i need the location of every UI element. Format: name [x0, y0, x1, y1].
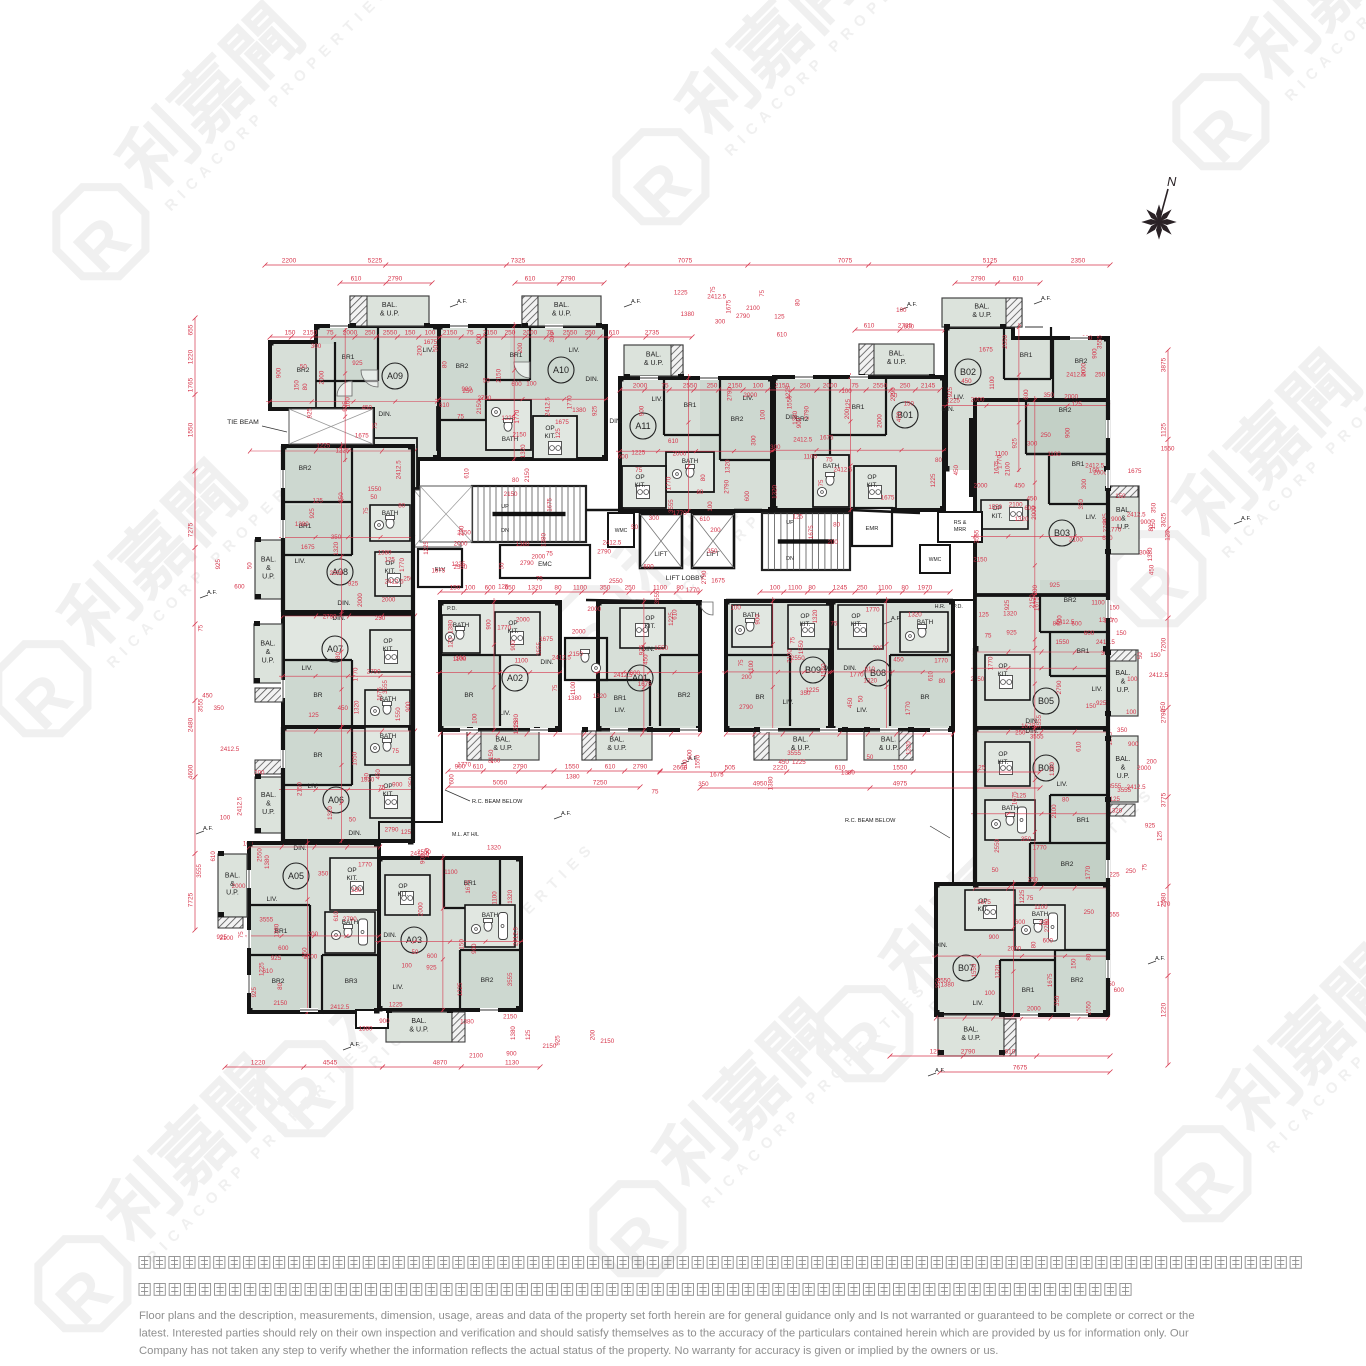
svg-text:1100: 1100: [878, 585, 892, 592]
svg-text:450: 450: [362, 405, 373, 412]
svg-text:A.F.: A.F.: [457, 299, 467, 305]
svg-text:125: 125: [978, 611, 989, 618]
svg-text:1220: 1220: [1161, 1002, 1168, 1017]
svg-text:DIN.: DIN.: [383, 932, 396, 939]
svg-text:100: 100: [1127, 676, 1138, 683]
svg-text:BR: BR: [755, 694, 764, 701]
svg-text:U.P.: U.P.: [1117, 687, 1130, 694]
svg-text:2790: 2790: [727, 387, 734, 401]
svg-text:250: 250: [1126, 868, 1137, 875]
svg-text:&: &: [1121, 765, 1126, 772]
svg-text:4870: 4870: [433, 1060, 448, 1067]
svg-text:1675: 1675: [555, 419, 569, 426]
svg-text:1675: 1675: [355, 433, 369, 440]
svg-text:& U.P.: & U.P.: [887, 359, 906, 366]
svg-text:600: 600: [643, 563, 654, 570]
svg-text:2412.5: 2412.5: [545, 397, 552, 416]
svg-text:3555: 3555: [196, 863, 203, 877]
svg-text:3555: 3555: [787, 750, 801, 757]
svg-text:OP: OP: [998, 751, 1007, 758]
svg-text:75: 75: [851, 383, 859, 390]
svg-text:2790: 2790: [739, 704, 753, 711]
svg-text:DN: DN: [501, 528, 509, 534]
svg-text:3875: 3875: [1161, 357, 1168, 372]
svg-text:50: 50: [499, 562, 506, 569]
svg-text:2550: 2550: [454, 564, 468, 571]
svg-text:1770: 1770: [934, 658, 948, 665]
svg-text:LIV.: LIV.: [1056, 781, 1067, 788]
svg-text:A.F.: A.F.: [935, 1068, 945, 1074]
svg-text:KIT.: KIT.: [997, 671, 1008, 678]
svg-text:75: 75: [831, 620, 838, 627]
svg-text:450: 450: [961, 378, 972, 385]
svg-text:250: 250: [800, 383, 811, 390]
svg-text:KIT.: KIT.: [991, 513, 1002, 520]
svg-text:1675: 1675: [539, 636, 553, 643]
svg-text:OP: OP: [800, 613, 809, 620]
svg-text:A.F.: A.F.: [891, 616, 901, 622]
svg-text:1245: 1245: [833, 585, 848, 592]
svg-text:900: 900: [506, 1051, 517, 1058]
svg-text:BR2: BR2: [731, 416, 744, 423]
svg-text:1100: 1100: [491, 891, 498, 905]
svg-text:2000: 2000: [587, 606, 601, 613]
svg-text:925: 925: [307, 407, 314, 418]
svg-text:DIN.: DIN.: [609, 418, 622, 425]
svg-text:1380: 1380: [1049, 762, 1056, 776]
svg-text:200: 200: [827, 539, 838, 546]
svg-text:2000: 2000: [523, 330, 538, 337]
svg-text:U.P.: U.P.: [226, 890, 239, 897]
svg-text:75: 75: [238, 931, 245, 938]
svg-text:1320: 1320: [520, 444, 527, 458]
svg-text:1320: 1320: [333, 541, 340, 555]
svg-text:4600: 4600: [188, 764, 195, 779]
svg-text:600: 600: [427, 953, 438, 960]
svg-text:1770: 1770: [673, 510, 687, 517]
svg-text:100: 100: [526, 380, 537, 387]
svg-text:1770: 1770: [399, 558, 406, 572]
svg-text:600: 600: [278, 945, 289, 952]
svg-text:1225: 1225: [258, 962, 265, 976]
svg-text:1380: 1380: [792, 410, 799, 424]
svg-text:150: 150: [1115, 493, 1126, 500]
svg-text:KIT.: KIT.: [977, 906, 988, 913]
svg-text:150: 150: [1150, 652, 1161, 659]
svg-text:KIT.: KIT.: [384, 568, 395, 575]
svg-text:610: 610: [525, 276, 536, 283]
svg-text:2412.5: 2412.5: [1096, 639, 1115, 646]
svg-text:50: 50: [890, 392, 897, 399]
svg-text:BATH: BATH: [917, 619, 934, 626]
svg-text:600: 600: [1084, 630, 1095, 637]
svg-text:1765: 1765: [188, 377, 195, 392]
svg-text:A09: A09: [387, 371, 403, 381]
svg-text:300: 300: [715, 318, 726, 325]
svg-text:1220: 1220: [188, 349, 195, 364]
svg-text:1320: 1320: [725, 459, 732, 473]
svg-text:1675: 1675: [881, 494, 895, 501]
svg-text:505: 505: [725, 765, 736, 772]
svg-text:250: 250: [585, 330, 596, 337]
svg-text:1225: 1225: [457, 982, 464, 996]
svg-text:2000: 2000: [743, 392, 757, 399]
svg-text:DN: DN: [786, 556, 794, 562]
svg-text:A.F.: A.F.: [1041, 296, 1051, 302]
svg-text:1770: 1770: [566, 395, 573, 409]
svg-text:RS &: RS &: [954, 520, 967, 526]
svg-text:KIT.: KIT.: [382, 791, 393, 798]
svg-text:BR2: BR2: [299, 465, 312, 472]
svg-text:7200: 7200: [1161, 637, 1168, 652]
svg-text:1675: 1675: [638, 681, 652, 688]
svg-text:A.F.: A.F.: [203, 826, 213, 832]
svg-text:2550: 2550: [994, 838, 1001, 852]
svg-text:125: 125: [1156, 830, 1163, 841]
svg-text:1380: 1380: [572, 407, 586, 414]
svg-text:DIN.: DIN.: [348, 830, 361, 837]
svg-text:1225: 1225: [946, 397, 960, 404]
svg-text:100: 100: [465, 585, 476, 592]
svg-text:1550: 1550: [395, 707, 402, 721]
svg-text:LIV.: LIV.: [782, 699, 793, 706]
svg-text:2790: 2790: [513, 764, 528, 771]
svg-text:925: 925: [1049, 582, 1060, 589]
svg-text:150: 150: [294, 380, 301, 391]
svg-text:250: 250: [1039, 920, 1050, 927]
svg-text:925: 925: [947, 386, 954, 397]
svg-text:& U.P.: & U.P.: [961, 1035, 980, 1042]
svg-text:900: 900: [510, 640, 517, 651]
svg-text:2100: 2100: [469, 1052, 483, 1059]
svg-text:4950: 4950: [753, 781, 768, 788]
svg-text:BAL.: BAL.: [889, 351, 904, 358]
svg-text:DIN.: DIN.: [378, 411, 391, 418]
svg-text:450: 450: [375, 769, 382, 780]
svg-text:U.P.: U.P.: [262, 658, 275, 665]
svg-text:610: 610: [463, 468, 470, 479]
svg-text:1380: 1380: [460, 1019, 474, 1026]
svg-text:1100: 1100: [444, 869, 458, 876]
svg-text:2790: 2790: [961, 1049, 976, 1056]
svg-text:2150: 2150: [569, 651, 583, 658]
svg-text:1225: 1225: [389, 1001, 403, 1008]
svg-text:600: 600: [686, 749, 693, 760]
svg-text:80: 80: [808, 585, 816, 592]
svg-text:1770: 1770: [686, 587, 700, 594]
svg-text:50: 50: [300, 364, 307, 371]
svg-text:BR2: BR2: [1061, 861, 1074, 868]
svg-text:75: 75: [457, 413, 464, 420]
svg-text:N: N: [1167, 174, 1177, 189]
svg-text:1320: 1320: [905, 741, 912, 755]
svg-text:2790: 2790: [803, 405, 810, 419]
svg-text:1380: 1380: [566, 774, 580, 781]
svg-text:100: 100: [220, 815, 231, 822]
svg-text:80: 80: [935, 457, 942, 464]
svg-text:50: 50: [858, 695, 865, 702]
svg-text:80: 80: [277, 982, 284, 989]
svg-text:& U.P.: & U.P.: [493, 745, 512, 752]
svg-text:1380: 1380: [540, 533, 547, 547]
svg-text:125: 125: [385, 556, 396, 563]
svg-text:450: 450: [778, 759, 789, 766]
svg-text:300: 300: [1027, 440, 1038, 447]
svg-text:75: 75: [326, 330, 334, 337]
svg-text:& U.P.: & U.P.: [607, 745, 626, 752]
svg-text:610: 610: [605, 764, 616, 771]
svg-text:600: 600: [485, 585, 496, 592]
svg-text:2790: 2790: [385, 826, 399, 833]
svg-text:450: 450: [1027, 495, 1038, 502]
svg-text:BR: BR: [464, 692, 473, 699]
svg-text:2000: 2000: [572, 629, 586, 636]
svg-text:150: 150: [285, 330, 296, 337]
svg-text:P.D.: P.D.: [447, 606, 457, 612]
svg-text:200: 200: [417, 345, 424, 356]
svg-text:BAL.: BAL.: [646, 352, 661, 359]
svg-text:350: 350: [1054, 995, 1061, 1006]
svg-text:BAL.: BAL.: [260, 641, 275, 648]
svg-text:610: 610: [700, 516, 711, 523]
svg-text:925: 925: [352, 360, 363, 367]
svg-text:2000: 2000: [1027, 1006, 1041, 1013]
svg-text:610: 610: [333, 911, 340, 922]
svg-text:& U.P.: & U.P.: [552, 311, 571, 318]
svg-text:350: 350: [1043, 392, 1054, 399]
svg-text:1225: 1225: [631, 449, 645, 456]
svg-text:LIV.: LIV.: [499, 710, 510, 717]
svg-text:1225: 1225: [316, 443, 330, 450]
svg-text:250: 250: [365, 330, 376, 337]
svg-text:610: 610: [210, 851, 217, 862]
svg-text:75: 75: [392, 748, 399, 755]
svg-text:BAL.: BAL.: [261, 557, 276, 564]
svg-text:600: 600: [449, 774, 456, 785]
svg-text:OP: OP: [998, 663, 1007, 670]
svg-text:50: 50: [370, 494, 377, 501]
svg-text:1770: 1770: [457, 762, 471, 769]
svg-text:1320: 1320: [1015, 516, 1029, 523]
svg-text:BR1: BR1: [852, 404, 865, 411]
svg-text:50: 50: [631, 524, 638, 531]
svg-text:80: 80: [1062, 797, 1069, 804]
svg-text:1550: 1550: [821, 663, 828, 677]
svg-text:250: 250: [1041, 432, 1052, 439]
svg-text:2412.5: 2412.5: [833, 466, 852, 473]
svg-text:450: 450: [847, 697, 854, 708]
svg-text:925: 925: [309, 508, 316, 519]
svg-text:KIT.: KIT.: [997, 759, 1008, 766]
svg-text:200: 200: [872, 645, 883, 652]
svg-text:2790: 2790: [736, 313, 750, 320]
svg-text:1380: 1380: [274, 923, 281, 937]
svg-text:125: 125: [555, 428, 562, 439]
svg-text:2412.5: 2412.5: [330, 1004, 349, 1011]
svg-text:50: 50: [1137, 652, 1144, 659]
svg-text:BAL.: BAL.: [225, 873, 240, 880]
svg-text:2790: 2790: [597, 548, 611, 555]
svg-text:600: 600: [1043, 937, 1054, 944]
svg-text:1770: 1770: [358, 861, 372, 868]
svg-text:50: 50: [992, 867, 999, 874]
svg-text:2000: 2000: [232, 883, 246, 890]
svg-text:& U.P.: & U.P.: [644, 360, 663, 367]
svg-text:1550: 1550: [368, 486, 382, 493]
svg-text:KIT.: KIT.: [644, 623, 655, 630]
svg-text:2550: 2550: [609, 578, 623, 585]
svg-text:LIV.: LIV.: [392, 984, 403, 991]
svg-text:125: 125: [1110, 796, 1121, 803]
svg-text:LIV.: LIV.: [614, 707, 625, 714]
svg-text:125: 125: [498, 584, 509, 591]
svg-text:100: 100: [985, 990, 996, 997]
svg-text:BR1: BR1: [1077, 648, 1090, 655]
svg-text:125: 125: [774, 314, 785, 321]
svg-text:1320: 1320: [507, 889, 514, 903]
svg-text:2150: 2150: [483, 330, 498, 337]
svg-text:OP: OP: [398, 883, 407, 890]
svg-text:925: 925: [348, 581, 359, 588]
svg-text:2790: 2790: [367, 668, 381, 675]
svg-text:2412.5: 2412.5: [385, 579, 404, 586]
svg-text:80: 80: [901, 585, 909, 592]
svg-text:U.P.: U.P.: [262, 809, 275, 816]
svg-text:100: 100: [730, 604, 741, 611]
svg-text:350: 350: [600, 585, 611, 592]
svg-text:2790: 2790: [701, 570, 708, 584]
svg-text:2150: 2150: [476, 400, 483, 414]
svg-text:DIN.: DIN.: [337, 600, 350, 607]
svg-text:600: 600: [1023, 389, 1030, 400]
svg-text:BR2: BR2: [1059, 407, 1072, 414]
svg-text:925: 925: [215, 559, 222, 570]
svg-text:BATH: BATH: [382, 510, 399, 517]
svg-text:1225: 1225: [930, 473, 937, 487]
svg-text:OP: OP: [545, 425, 554, 432]
svg-text:2200: 2200: [282, 258, 297, 265]
svg-text:450: 450: [202, 693, 213, 700]
svg-text:250: 250: [900, 383, 911, 390]
svg-text:KIT.: KIT.: [382, 646, 393, 653]
svg-text:925: 925: [1006, 630, 1017, 637]
svg-text:925: 925: [1012, 438, 1019, 449]
svg-text:BR2: BR2: [481, 977, 494, 984]
svg-text:1675: 1675: [431, 567, 445, 574]
svg-text:A.F.: A.F.: [561, 811, 571, 817]
svg-text:1550: 1550: [352, 751, 359, 765]
svg-text:1675: 1675: [465, 879, 472, 893]
svg-text:2412.5: 2412.5: [1149, 672, 1168, 679]
svg-text:1100: 1100: [653, 585, 667, 592]
svg-text:925: 925: [1004, 599, 1011, 610]
svg-text:WMC: WMC: [615, 528, 628, 534]
svg-text:2000: 2000: [1064, 394, 1078, 401]
svg-text:BAL.: BAL.: [411, 1018, 426, 1025]
svg-text:1380: 1380: [681, 311, 695, 318]
svg-text:1225: 1225: [423, 540, 430, 554]
svg-text:350: 350: [698, 781, 709, 788]
svg-text:350: 350: [213, 705, 224, 712]
svg-text:2145: 2145: [921, 383, 936, 390]
svg-text:2000: 2000: [673, 451, 687, 458]
svg-text:BAL.: BAL.: [382, 302, 397, 309]
svg-text:350: 350: [1151, 502, 1158, 513]
svg-text:7275: 7275: [188, 522, 195, 537]
svg-text:1675: 1675: [547, 497, 554, 511]
svg-text:1100: 1100: [515, 657, 529, 664]
svg-text:350: 350: [707, 548, 718, 555]
svg-text:450: 450: [896, 411, 903, 422]
svg-text:610: 610: [351, 276, 362, 283]
svg-text:1100: 1100: [804, 453, 818, 460]
svg-text:BAL.: BAL.: [609, 737, 624, 744]
svg-text:100: 100: [344, 397, 351, 408]
svg-text:80: 80: [1053, 620, 1060, 627]
svg-text:BR: BR: [313, 692, 322, 699]
svg-text:150: 150: [405, 330, 416, 337]
svg-text:200: 200: [1032, 584, 1039, 595]
svg-text:925: 925: [592, 405, 599, 416]
svg-text:610: 610: [439, 402, 450, 409]
svg-text:200: 200: [517, 342, 524, 353]
svg-text:925: 925: [1145, 823, 1156, 830]
svg-text:BR: BR: [920, 694, 929, 701]
svg-text:1770: 1770: [996, 455, 1003, 469]
svg-text:75: 75: [710, 286, 717, 293]
svg-text:LIV.: LIV.: [266, 896, 277, 903]
svg-text:80: 80: [1030, 941, 1037, 948]
svg-text:1320: 1320: [1108, 807, 1122, 814]
svg-text:KIT.: KIT.: [850, 621, 861, 628]
svg-text:900: 900: [486, 619, 493, 630]
svg-text:5125: 5125: [983, 258, 998, 265]
svg-text:610: 610: [1005, 1049, 1016, 1056]
svg-text:LIV.: LIV.: [568, 347, 579, 354]
svg-text:75: 75: [198, 624, 205, 631]
svg-text:1320: 1320: [487, 844, 501, 851]
svg-text:150: 150: [904, 400, 915, 407]
svg-text:2150: 2150: [457, 530, 471, 537]
svg-text:BATH: BATH: [682, 458, 699, 465]
svg-text:OP: OP: [635, 474, 644, 481]
svg-text:600: 600: [511, 381, 522, 388]
svg-text:2000: 2000: [876, 414, 883, 428]
svg-text:OP: OP: [347, 867, 356, 874]
svg-text:U.P.: U.P.: [1117, 773, 1130, 780]
svg-text:600: 600: [1015, 919, 1026, 926]
svg-text:1550: 1550: [798, 640, 805, 654]
svg-text:3555: 3555: [1097, 335, 1104, 349]
svg-text:LIV.: LIV.: [856, 707, 867, 714]
svg-text:350: 350: [800, 690, 811, 697]
svg-text:3555: 3555: [536, 641, 543, 655]
svg-text:EMR: EMR: [866, 526, 879, 532]
svg-text:2150: 2150: [503, 1013, 517, 1020]
svg-text:3555: 3555: [259, 917, 273, 924]
svg-text:250: 250: [625, 585, 636, 592]
svg-text:2412.5: 2412.5: [1127, 511, 1146, 518]
svg-text:U.P.: U.P.: [262, 574, 275, 581]
svg-text:125: 125: [401, 829, 412, 836]
svg-text:2550: 2550: [383, 330, 398, 337]
svg-text:BAL.: BAL.: [793, 737, 808, 744]
svg-text:2550: 2550: [563, 330, 578, 337]
svg-text:BAL.: BAL.: [1115, 756, 1130, 763]
svg-text:125: 125: [793, 514, 804, 521]
svg-text:KIT.: KIT.: [866, 482, 877, 489]
svg-text:300: 300: [649, 515, 660, 522]
